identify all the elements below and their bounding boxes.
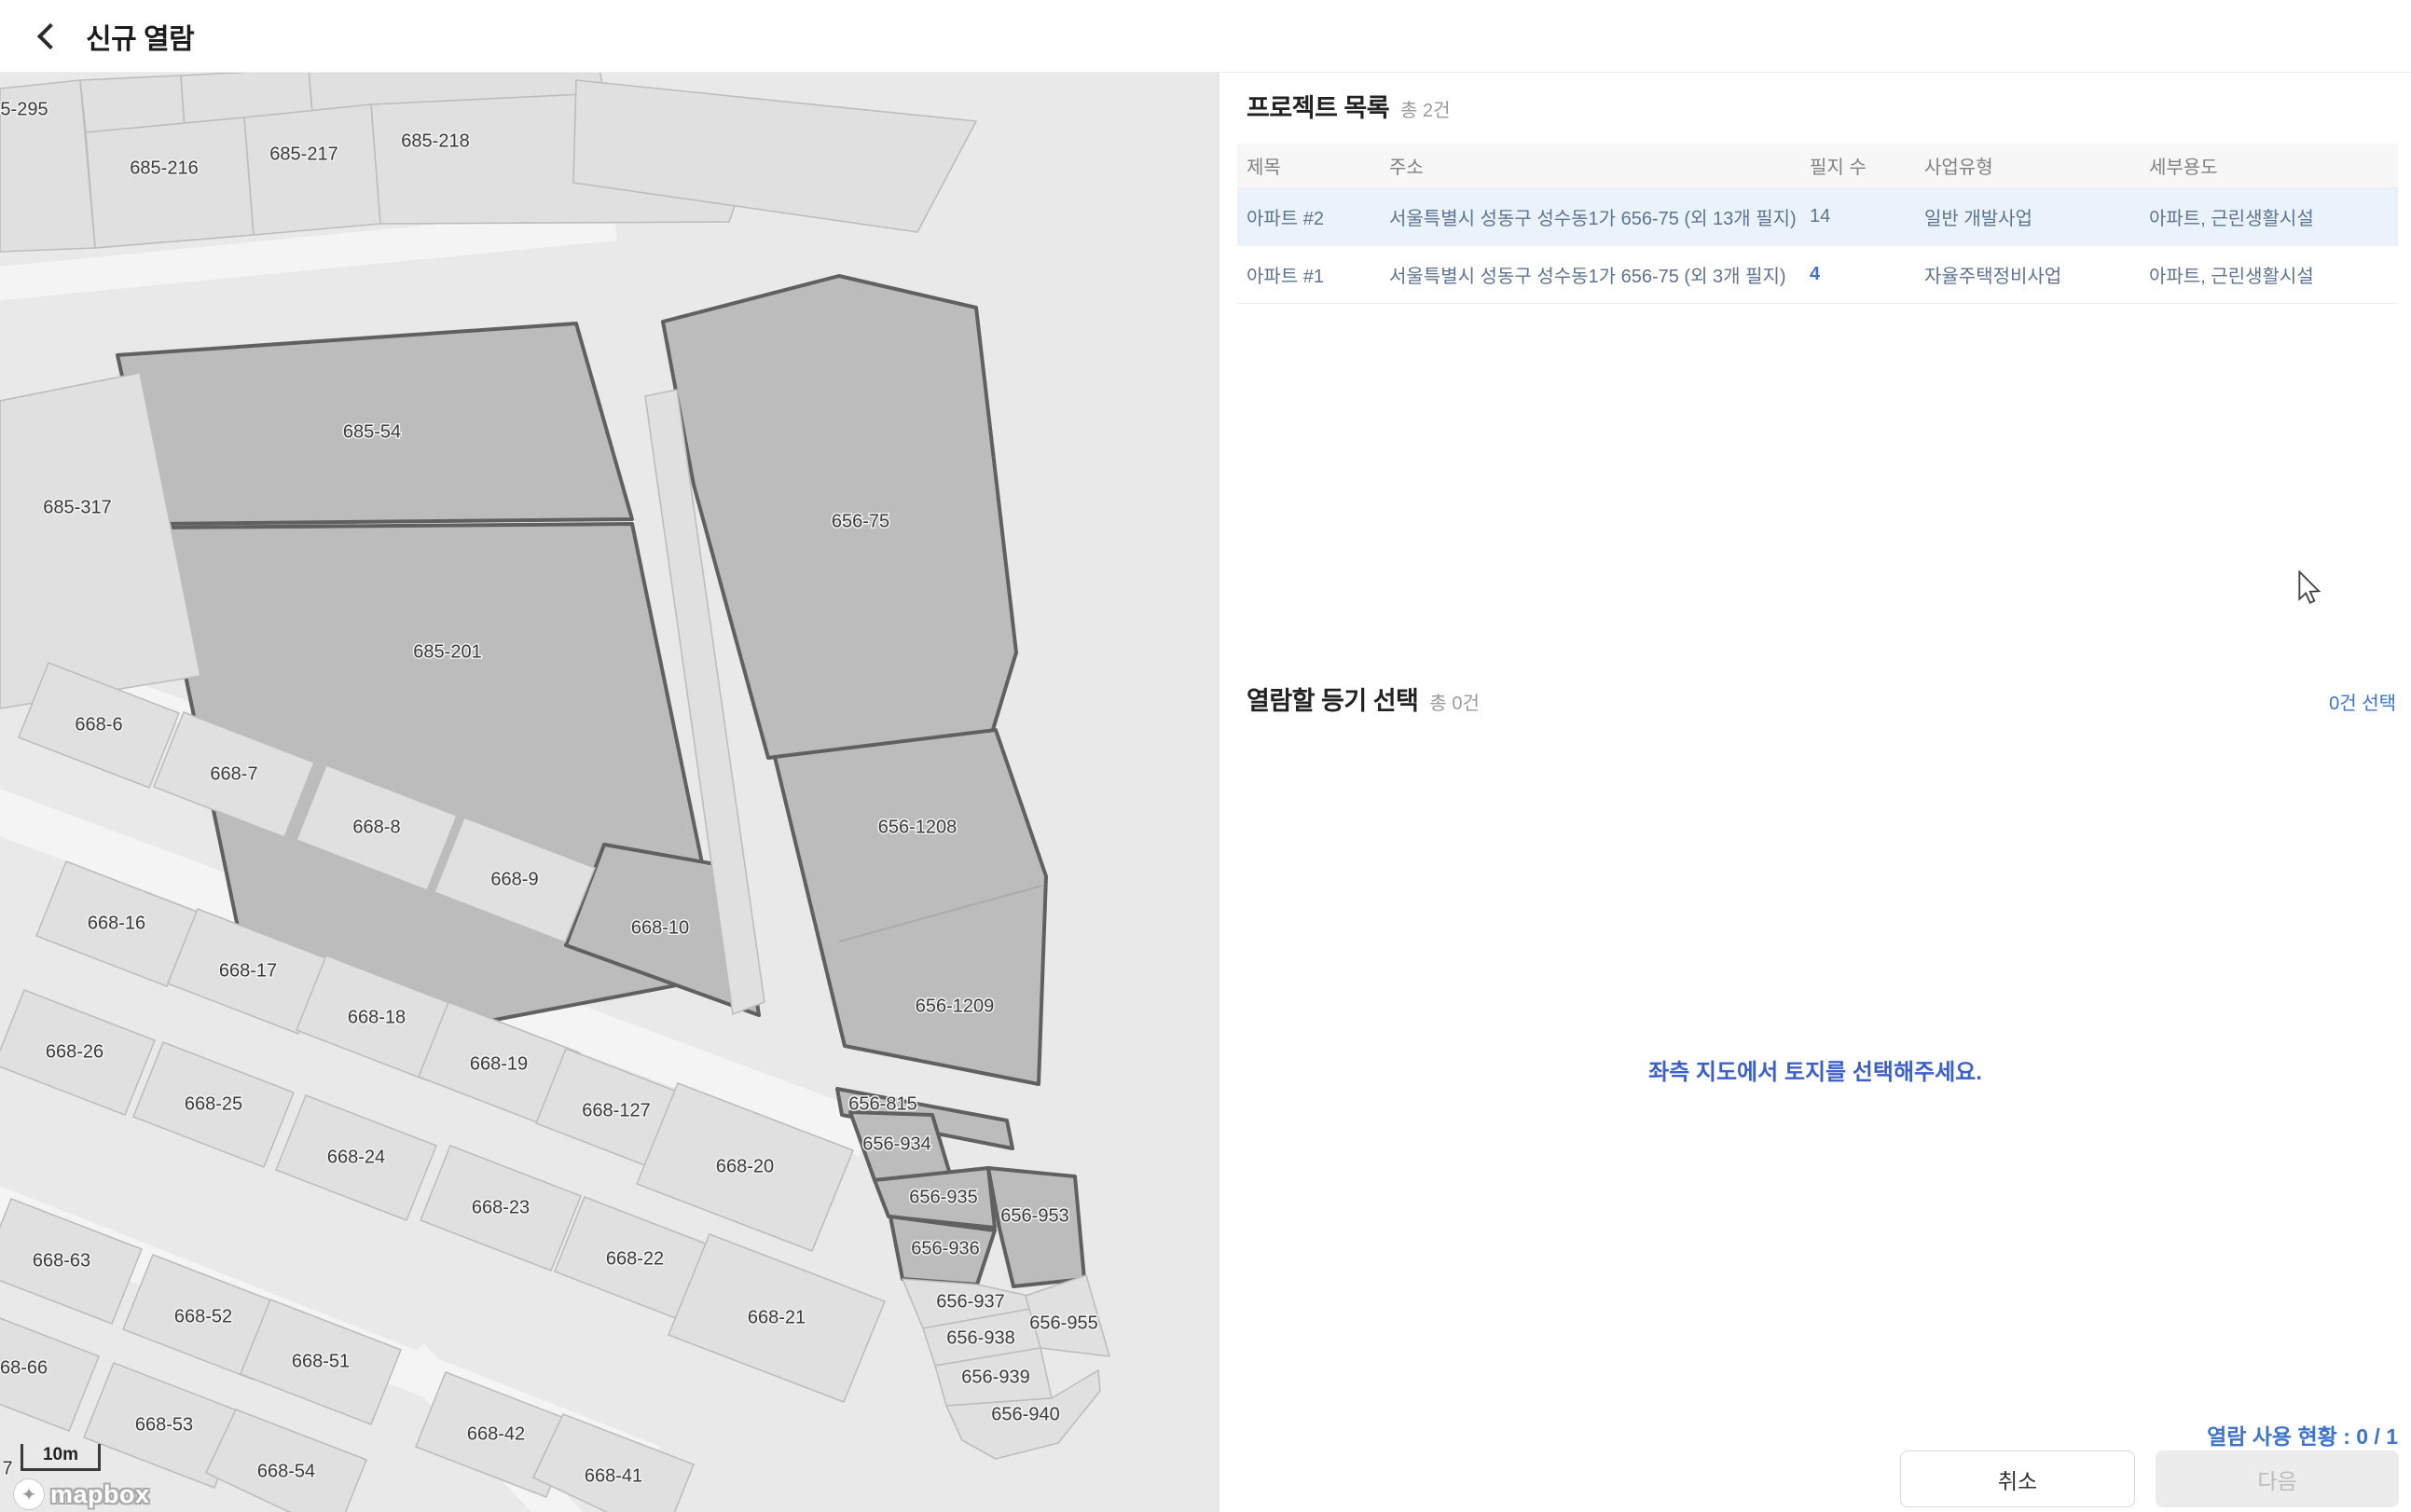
project-table-header: 제목 주소 필지 수 사업유형 세부용도 <box>1237 144 2398 188</box>
map-parcel-label: 668-24 <box>327 1147 385 1167</box>
row-title: 아파트 #2 <box>1247 203 1389 230</box>
map[interactable]: 685-54685-201656-75656-1208656-1209668-1… <box>0 0 1219 1512</box>
col-address: 주소 <box>1389 152 1810 179</box>
next-button[interactable]: 다음 <box>2156 1450 2399 1507</box>
table-row[interactable]: 아파트 #1서울특별시 성동구 성수동1가 656-75 (외 3개 필지)4자… <box>1237 246 2398 304</box>
map-parcel-label: 685-317 <box>43 497 111 517</box>
map-parcel-label: 685-217 <box>269 144 338 164</box>
map-parcel-label: 668-66 <box>0 1357 48 1378</box>
mapbox-wordmark: mapbox <box>50 1480 150 1509</box>
map-parcel-label: 668-25 <box>185 1093 242 1114</box>
map-parcel-label: 668-7 <box>210 763 257 784</box>
project-table-body: 아파트 #2서울특별시 성동구 성수동1가 656-75 (외 13개 필지)1… <box>1237 188 2398 304</box>
map-parcel-label: 668-42 <box>467 1423 525 1444</box>
map-parcel-label: 668-23 <box>472 1197 530 1217</box>
row-detail-use: 아파트, 근린생활시설 <box>2149 261 2398 288</box>
map-parcel-label: 7 <box>2 1458 12 1478</box>
map-parcel[interactable] <box>244 104 380 235</box>
row-project-type: 자율주택정비사업 <box>1924 261 2149 288</box>
project-table: 제목 주소 필지 수 사업유형 세부용도 아파트 #2서울특별시 성동구 성수동… <box>1237 144 2398 304</box>
map-parcel-label: 656-938 <box>946 1327 1014 1348</box>
map-parcel-label: 685-54 <box>343 421 401 442</box>
row-parcel-count: 4 <box>1810 264 1924 285</box>
registry-selection-count: 총 0건 <box>1429 688 1479 715</box>
table-row[interactable]: 아파트 #2서울특별시 성동구 성수동1가 656-75 (외 13개 필지)1… <box>1237 188 2398 246</box>
map-parcel-label: 668-52 <box>174 1306 232 1326</box>
map-parcel-label: 668-8 <box>352 817 400 837</box>
map-parcel-label: 656-940 <box>991 1404 1059 1424</box>
map-parcel-label: 656-955 <box>1029 1313 1097 1333</box>
map-parcel-selected[interactable] <box>988 1168 1084 1286</box>
map-parcel-label: 656-934 <box>862 1134 930 1154</box>
row-project-type: 일반 개발사업 <box>1924 203 2149 230</box>
map-parcel-label: 5-295 <box>0 99 48 119</box>
map-parcel-label: 668-9 <box>490 869 538 889</box>
registry-selection-title: 열람할 등기 선택 <box>1247 680 1418 717</box>
selected-count-link[interactable]: 0건 선택 <box>2329 688 2396 715</box>
map-parcel-label: 668-19 <box>470 1053 528 1074</box>
map-parcel[interactable] <box>86 117 254 248</box>
map-parcel-label: 656-1209 <box>916 996 995 1016</box>
col-title: 제목 <box>1247 152 1389 179</box>
map-parcel-label: 685-218 <box>401 131 469 151</box>
map-parcel-label: 656-936 <box>911 1238 979 1258</box>
map-parcel-label: 656-937 <box>936 1291 1004 1312</box>
project-list-title: 프로젝트 목록 <box>1247 88 1389 124</box>
map-parcel-label: 668-63 <box>33 1250 90 1271</box>
map-parcel-label: 668-53 <box>135 1414 193 1435</box>
map-parcel-label: 656-815 <box>848 1093 916 1114</box>
map-parcel-label: 668-18 <box>348 1007 406 1027</box>
map-parcel-label: 668-20 <box>716 1156 774 1176</box>
map-parcel-label: 668-17 <box>219 960 277 981</box>
mapbox-icon: ✦ <box>13 1478 45 1510</box>
map-parcel-label: 668-6 <box>75 714 122 735</box>
row-address: 서울특별시 성동구 성수동1가 656-75 (외 3개 필지) <box>1389 261 1810 288</box>
map-parcel-label: 668-10 <box>631 917 689 938</box>
map-parcel-label: 685-216 <box>130 158 198 178</box>
empty-state-message: 좌측 지도에서 토지를 선택해주세요. <box>1219 1053 2411 1086</box>
row-title: 아파트 #1 <box>1247 261 1389 288</box>
map-parcel-label: 668-54 <box>257 1461 315 1481</box>
back-icon[interactable] <box>37 22 63 48</box>
map-parcel-label: 656-935 <box>909 1187 977 1207</box>
map-parcel-label: 656-75 <box>832 511 889 531</box>
page-title: 신규 열람 <box>86 16 194 57</box>
project-list-header: 프로젝트 목록 총 2건 <box>1247 88 1451 124</box>
map-scale-label: 10m <box>43 1445 78 1464</box>
row-parcel-count: 14 <box>1810 206 1924 227</box>
map-parcel-label: 668-16 <box>88 913 145 933</box>
col-parcel-count: 필지 수 <box>1810 152 1924 179</box>
row-detail-use: 아파트, 근린생활시설 <box>2149 203 2398 230</box>
registry-selection-header: 열람할 등기 선택 총 0건 <box>1247 680 1480 717</box>
col-project-type: 사업유형 <box>1924 152 2149 179</box>
cancel-button[interactable]: 취소 <box>1900 1450 2135 1507</box>
map-canvas[interactable]: 685-54685-201656-75656-1208656-1209668-1… <box>0 0 1219 1512</box>
map-parcel-label: 656-953 <box>1000 1205 1068 1226</box>
usage-status: 열람 사용 현황 : 0 / 1 <box>2207 1419 2398 1450</box>
row-address: 서울특별시 성동구 성수동1가 656-75 (외 13개 필지) <box>1389 203 1810 230</box>
mapbox-attribution[interactable]: ✦ mapbox <box>13 1478 150 1510</box>
map-parcel-label: 685-201 <box>413 641 481 662</box>
map-scale-bar: 10m <box>21 1444 101 1471</box>
map-parcel-label: 668-22 <box>606 1248 664 1269</box>
right-panel: 프로젝트 목록 총 2건 제목 주소 필지 수 사업유형 세부용도 아파트 #2… <box>1219 73 2411 1512</box>
map-parcel-label: 668-51 <box>292 1351 350 1371</box>
map-parcel-label: 668-21 <box>748 1307 806 1327</box>
top-header-bar: 신규 열람 <box>0 0 2411 73</box>
map-parcel-selected[interactable] <box>775 730 1046 1084</box>
project-list-count: 총 2건 <box>1400 95 1450 122</box>
col-detail-use: 세부용도 <box>2149 152 2398 179</box>
map-parcel-label: 656-1208 <box>878 817 958 837</box>
map-parcel-label: 668-41 <box>585 1465 642 1486</box>
map-parcel-label: 668-127 <box>582 1100 650 1120</box>
map-parcel-label: 656-939 <box>961 1367 1029 1387</box>
map-parcel-label: 668-26 <box>46 1041 103 1062</box>
